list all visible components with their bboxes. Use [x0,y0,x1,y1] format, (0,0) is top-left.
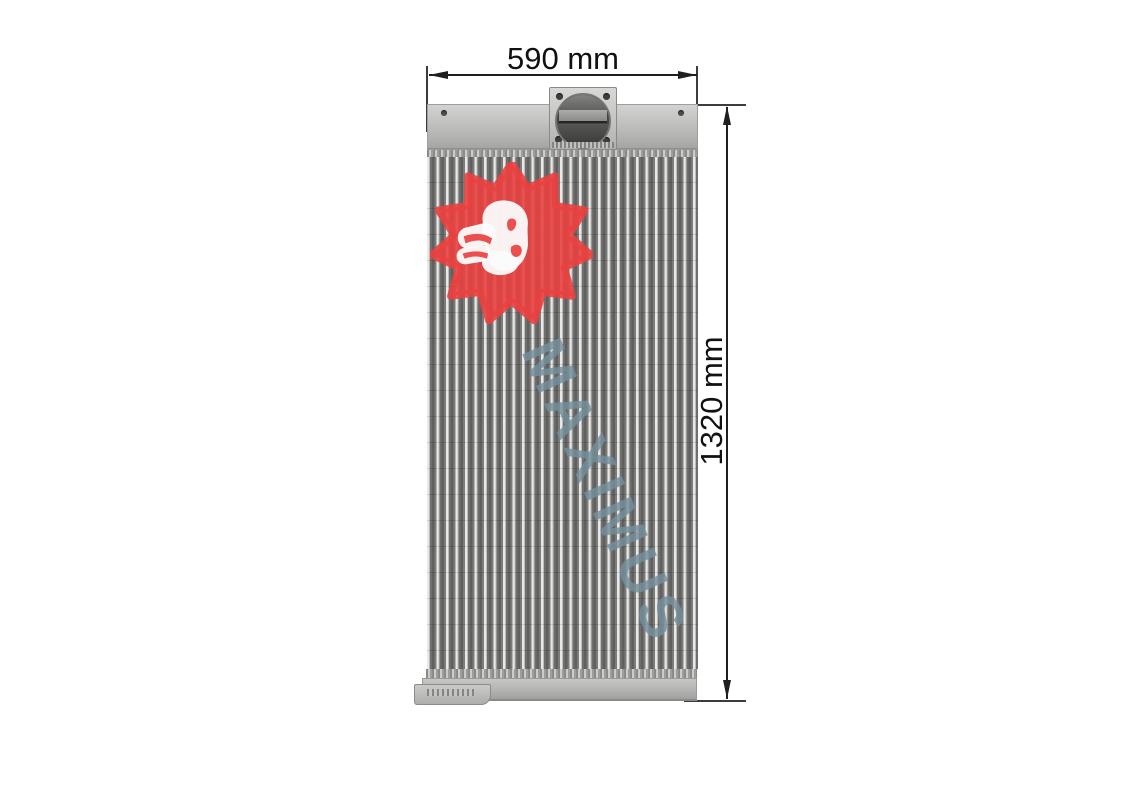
width-dimension-label: 590 mm [463,41,663,77]
inlet-flange [549,87,617,150]
core-crimp-strip-top [427,149,698,157]
product-image-canvas: 590 mm 1320 mm [0,0,1123,794]
bracket-rivet-strip [427,689,475,696]
height-dimension-label: 1320 mm [695,321,729,481]
port-inner-baffle [559,110,607,123]
core-crimp-strip-bottom [426,669,697,678]
arrowhead-down-icon [723,680,731,699]
mounting-hole-right [678,110,684,116]
arrowhead-right-icon [678,71,697,79]
bottom-mounting-bracket [414,684,491,705]
inlet-port-opening [555,93,611,149]
arrowhead-up-icon [723,106,731,125]
arrowhead-left-icon [429,71,448,79]
flange-crimp-strip [552,142,614,148]
port-inner-wall [557,95,609,110]
lion-head-spiky-mane-icon [430,162,593,325]
mounting-hole-left [441,110,447,116]
